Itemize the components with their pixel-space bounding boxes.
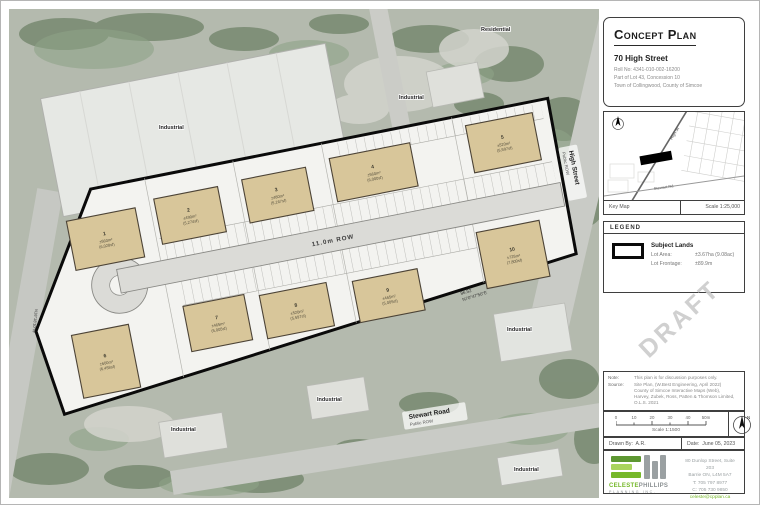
lot-area-value: ±3.67ha (9.08ac) [695,252,734,258]
keymap-scale: Scale 1:25,000 [680,201,744,214]
legend-header: LEGEND [604,222,744,234]
note-text: This plan is for discussion purposes onl… [634,375,740,382]
drawn-by-label: Drawn By: [609,441,633,447]
firm-name-sub: PLANNING INC. [609,490,681,494]
compass-icon: N [729,412,755,436]
roll-number: Roll No: 4341-010-002-16200 [614,66,734,74]
date-label: Date: [687,441,699,447]
scale-tick: 30 [668,415,673,420]
compass-north-label: N [747,415,750,420]
scale-bar-box: 0 10 20 30 40 50m Scale 1:1500 N [603,411,745,437]
logo-green-bars [611,455,641,481]
key-map-box: High St Stewart Rd Key Map Scale 1:25,00… [603,111,745,215]
scale-tick: 10 [632,415,637,420]
firm-phone: T: 705 797 8977 [681,480,739,487]
building-6: 6 ±600m² (6,458sf) [71,324,140,398]
scale-tick: 50m [702,415,711,420]
legend-subject-lands: Subject Lands [651,242,734,249]
landuse-label-industrial: Industrial [514,467,539,473]
firm-address-2: Barrie ON, L4M 5A7 [681,472,739,479]
compass-box: N [728,412,755,436]
landuse-label-industrial: Industrial [399,95,424,101]
scale-bar: 0 10 20 30 40 50m Scale 1:1500 [604,412,728,436]
firm-name-first: CELESTE [609,483,639,489]
title-block-panel: Concept Plan 70 High Street Roll No: 434… [599,9,753,498]
source-label: Source: [608,382,632,407]
firm-logo: CELESTEPHILLIPS PLANNING INC. [609,455,681,489]
frontage-value: ±89.9m [695,261,712,267]
subject-lands-swatch [612,243,644,259]
firm-contact: 80 Dunlop Street, Suite 203 Barrie ON, L… [681,455,739,489]
scale-tick: 40 [686,415,691,420]
landuse-label-industrial: Industrial [317,397,342,403]
note-label: Note: [608,375,632,382]
legal-description: Part of Lot 43, Concession 10 [614,74,734,82]
scale-bar-rule [616,421,716,427]
landuse-label-industrial: Industrial [159,125,184,131]
drawn-by-value: A.R. [636,441,646,447]
logo-gray-bars [644,455,666,481]
site-address: 70 High Street [614,54,734,63]
building-10: 10 ±725m² (7,800sf) [476,220,550,288]
scale-tick: 20 [650,415,655,420]
notes-box: Note: This plan is for discussion purpos… [603,371,745,411]
firm-cell: C: 705 730 9850 [681,487,739,494]
landuse-label-residential: Residential [481,27,511,33]
scale-tick: 0 [615,415,617,420]
title-box: Concept Plan 70 High Street Roll No: 434… [603,17,745,107]
firm-email: celeste@cpplan.ca [681,494,739,501]
drawing-sheet: 11.0m ROW 1 ±560m² (6,028sf) 2 ±490m² (5… [0,0,760,505]
lot-area-label: Lot Area: [651,252,695,258]
frontage-label: Lot Frontage: [651,261,695,267]
firm-name-last: PHILLIPS [639,483,668,489]
firm-address-1: 80 Dunlop Street, Suite 203 [681,458,739,472]
municipality: Town of Collingwood, County of Simcoe [614,82,734,90]
firm-box: CELESTEPHILLIPS PLANNING INC. 80 Dunlop … [603,450,745,494]
keymap-caption: Key Map [604,201,680,214]
source-line: O.L.S. 2021 [634,400,740,406]
sheet-title: Concept Plan [614,27,696,46]
key-map-canvas: High St Stewart Rd [604,112,744,201]
landuse-label-industrial: Industrial [171,427,196,433]
landuse-label-industrial: Industrial [507,327,532,333]
credits-box: Drawn By: A.R. Date: June 05, 2023 [603,437,745,450]
date-value: June 05, 2023 [702,441,735,447]
scale-text: Scale 1:1500 [604,428,728,433]
legend-box: LEGEND Subject Lands Lot Area: ±3.67ha (… [603,221,745,293]
site-plan-canvas: 11.0m ROW 1 ±560m² (6,028sf) 2 ±490m² (5… [9,9,599,498]
